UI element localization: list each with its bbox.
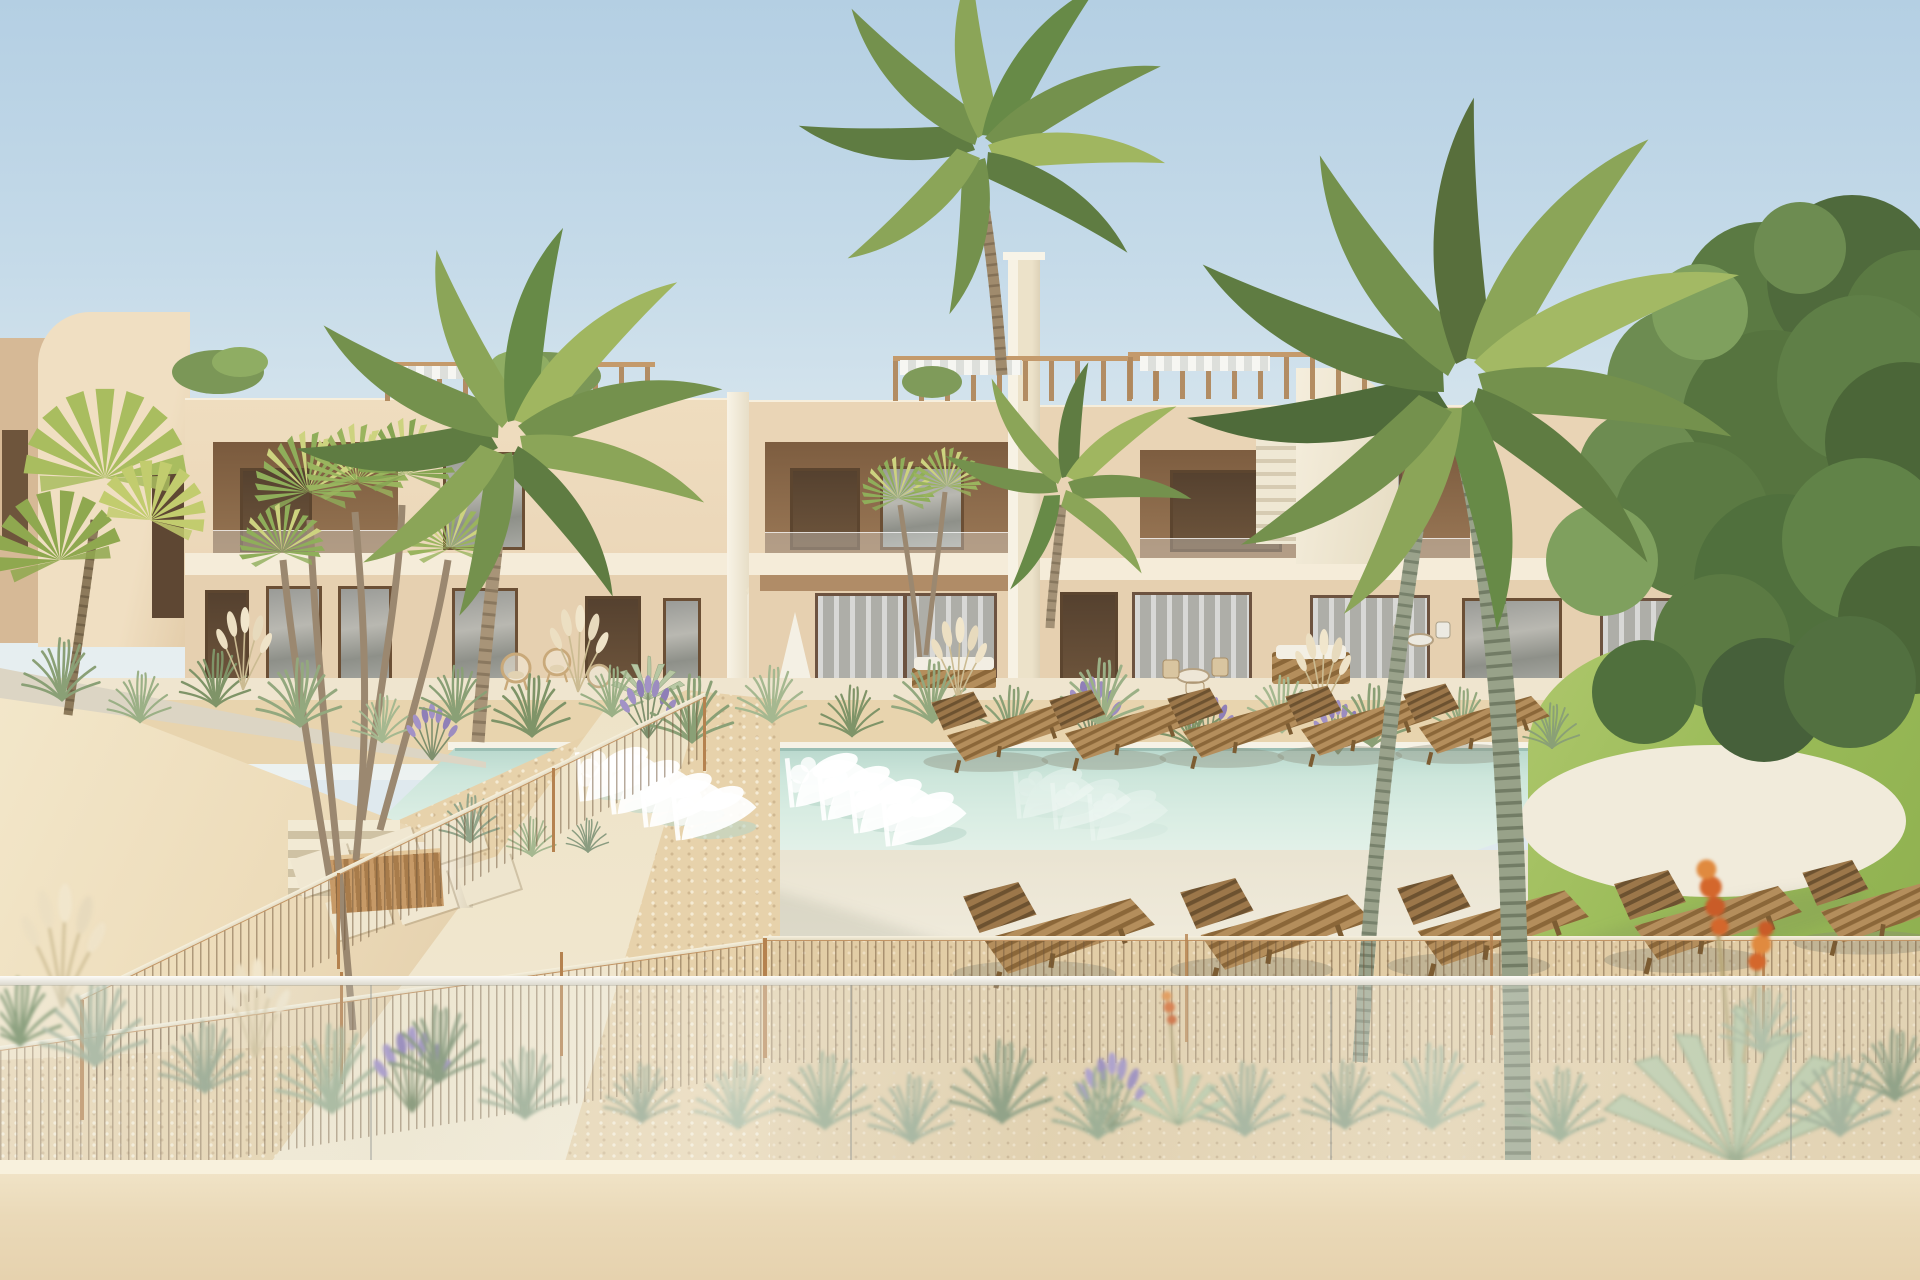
leafy-tree (1546, 195, 1920, 762)
vegetation-and-loungers (0, 0, 1920, 1280)
fan-palm-left (0, 389, 219, 715)
palm-tree-tall-center (797, 0, 1172, 375)
architectural-render (0, 0, 1920, 1280)
palm-tree-center (943, 361, 1193, 628)
parapet-wall (0, 1174, 1920, 1280)
